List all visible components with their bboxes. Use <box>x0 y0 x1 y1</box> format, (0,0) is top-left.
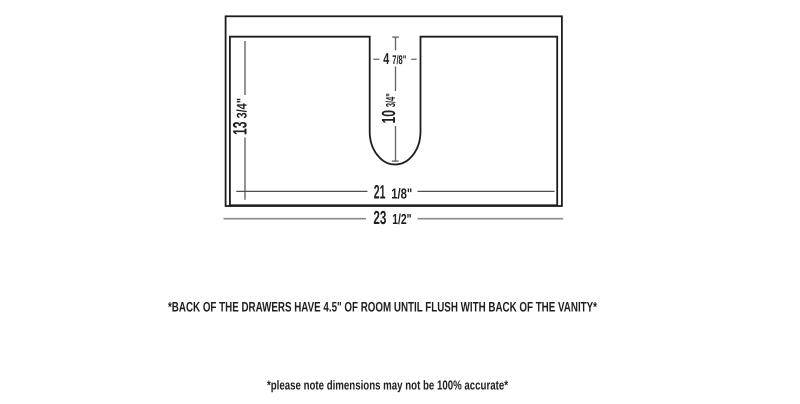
svg-text:3/4": 3/4" <box>233 98 249 119</box>
svg-text:13: 13 <box>229 121 251 135</box>
svg-text:1/2": 1/2" <box>392 212 411 228</box>
svg-text:7/8": 7/8" <box>392 53 406 67</box>
svg-text:*please note dimensions may no: *please note dimensions may not be 100% … <box>267 378 509 393</box>
svg-text:10: 10 <box>379 110 400 123</box>
svg-text:*BACK OF THE DRAWERS HAVE 4.5": *BACK OF THE DRAWERS HAVE 4.5" OF ROOM U… <box>168 300 597 315</box>
svg-text:4: 4 <box>383 51 389 68</box>
svg-text:21: 21 <box>374 181 386 203</box>
svg-text:1/8": 1/8" <box>391 186 412 202</box>
svg-text:23: 23 <box>373 208 386 229</box>
svg-text:3/4": 3/4" <box>383 93 398 107</box>
